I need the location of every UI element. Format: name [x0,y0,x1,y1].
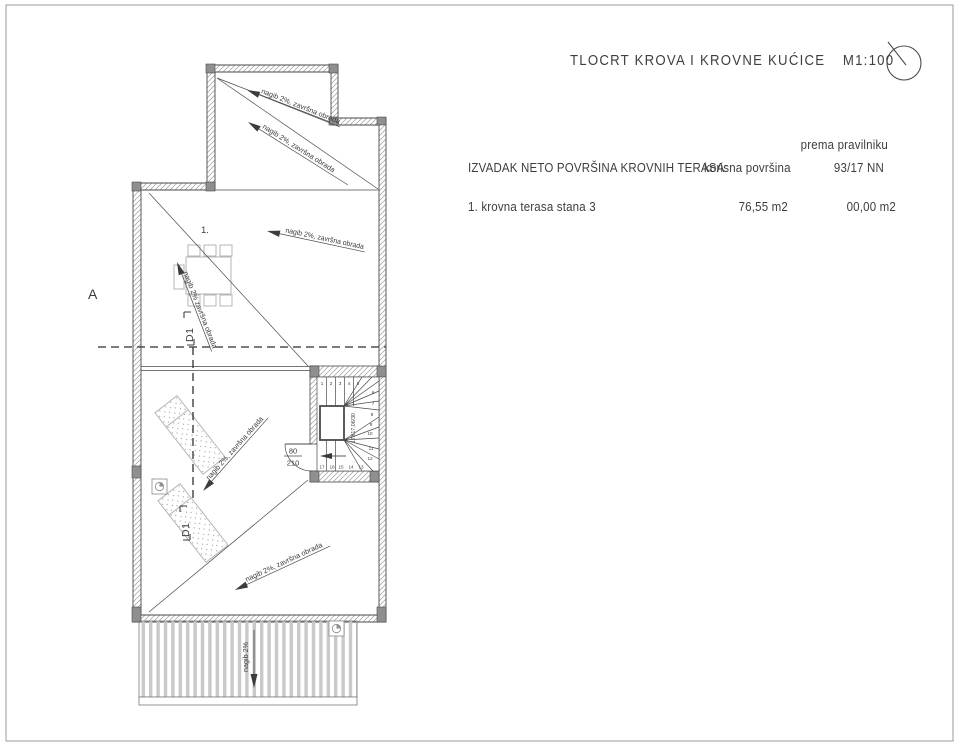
d1-label: D1 [180,523,192,537]
svg-text:16: 16 [329,465,335,470]
door-height-label: 210 [287,459,300,468]
door-swing: 80 210 [284,444,312,471]
slope-label: nagib 2%, završna obrada [261,122,338,175]
svg-text:4: 4 [348,381,351,386]
section-letter: A [88,286,98,302]
d1-marker: D1 [184,312,196,345]
svg-text:14: 14 [348,465,354,470]
svg-text:6: 6 [372,390,375,395]
wall-columns [132,64,386,622]
slope-label: nagib 2%, završna obrada [285,225,366,251]
stair-plan: 1 2 3 4 5 6 7 8 9 10 11 12 13 14 15 16 1… [317,377,379,471]
roof-edge-lines [141,190,379,371]
drawing-sheet: TLOCRT KROVA I KROVNE KUĆICE M1:100 prem… [0,0,960,747]
slope-label: nagib 2%, završna obrada [260,86,342,126]
north-arrow-icon [887,42,921,80]
slope-arrow-upper-roof-1: nagib 2%, završna obrada [246,81,344,130]
svg-text:5: 5 [357,381,360,386]
slope-label: nagib 2%, završna obrada [244,540,325,584]
svg-text:15: 15 [338,465,344,470]
room-number-label: 1. [201,225,209,236]
floor-plan: 1 2 3 4 5 6 7 8 9 10 11 12 13 14 15 16 1… [0,0,960,747]
roof-drain [152,479,167,494]
door-width-label: 80 [289,447,297,456]
svg-text:12: 12 [367,456,373,461]
svg-text:11: 11 [369,446,374,451]
svg-text:3: 3 [339,381,342,386]
svg-text:1: 1 [321,381,324,386]
svg-text:2: 2 [330,381,333,386]
slope-arrow-lower-terrace-2: nagib 2%, završna obrada [231,537,332,593]
svg-text:13: 13 [358,465,364,470]
svg-text:7: 7 [372,401,375,406]
slope-label-short: nagib 2% [241,642,250,672]
svg-text:17: 17 [319,465,325,470]
d1-label: D1 [184,328,196,342]
slope-arrow-terrace-right: nagib 2%, završna obrada [266,222,366,255]
svg-text:9: 9 [370,422,373,427]
svg-text:8: 8 [371,412,374,417]
stair-dimension-label: 17X17,06/30 [351,413,357,443]
svg-text:10: 10 [367,431,373,436]
roof-drain [329,621,344,636]
exterior-walls [133,65,386,622]
